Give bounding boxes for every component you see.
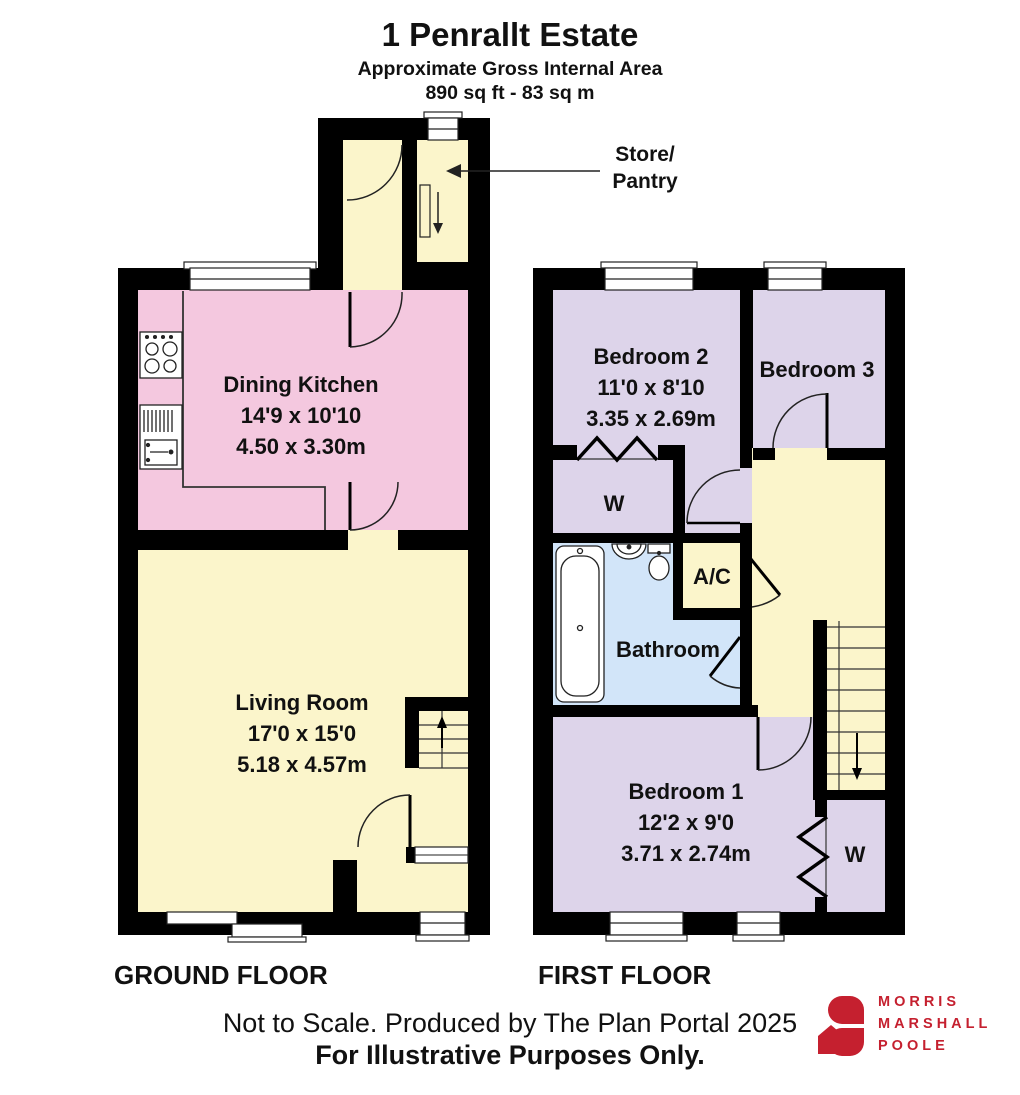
floorplan-page: 1 Penrallt Estate Approximate Gross Inte… xyxy=(0,0,1020,1095)
logo-text-marshall: MARSHALL xyxy=(878,1016,991,1032)
label-store-pantry: Store/ Pantry xyxy=(612,141,677,195)
bedroom1-doorway xyxy=(758,705,813,717)
kitchen-window xyxy=(184,262,316,290)
label-ground-floor: GROUND FLOOR xyxy=(114,960,328,991)
page-title: 1 Penrallt Estate xyxy=(0,16,1020,54)
bathroom-floor-ext xyxy=(673,620,740,705)
label-bedroom-1: Bedroom 1 12'2 x 9'0 3.71 x 2.74m xyxy=(621,776,751,869)
hall-wall-stub xyxy=(333,860,357,912)
ground-floor-plan xyxy=(118,112,600,942)
footer-illustrative: For Illustrative Purposes Only. xyxy=(0,1040,1020,1071)
page-area: 890 sq ft - 83 sq m xyxy=(0,82,1020,105)
logo-text-poole: POOLE xyxy=(878,1038,949,1054)
hall-side-window xyxy=(406,847,468,863)
toilet-icon xyxy=(648,544,670,580)
bedroom2-doorway xyxy=(740,468,752,523)
label-ac: A/C xyxy=(693,565,731,589)
label-first-floor: FIRST FLOOR xyxy=(538,960,711,991)
label-bathroom: Bathroom xyxy=(616,638,720,662)
sink-icon xyxy=(140,405,182,469)
footer-disclaimer: Not to Scale. Produced by The Plan Porta… xyxy=(0,1008,1020,1039)
label-bedroom-2: Bedroom 2 11'0 x 8'10 3.35 x 2.69m xyxy=(586,341,716,434)
store-window xyxy=(424,112,462,140)
bedroom3-doorway xyxy=(775,448,827,460)
label-bedroom-3: Bedroom 3 xyxy=(760,358,875,382)
bath-icon xyxy=(556,546,604,702)
page-subtitle: Approximate Gross Internal Area xyxy=(0,58,1020,81)
hob-icon xyxy=(140,332,182,378)
label-living-room: Living Room 17'0 x 15'0 5.18 x 4.57m xyxy=(235,687,368,780)
label-dining-kitchen: Dining Kitchen 14'9 x 10'10 4.50 x 3.30m xyxy=(223,369,378,462)
label-wardrobe-bedroom2: W xyxy=(604,492,625,516)
kitchen-living-doorway xyxy=(348,530,398,550)
store-hall-floor xyxy=(343,140,402,290)
label-wardrobe-bedroom1: W xyxy=(845,843,866,867)
floorplan-canvas xyxy=(0,0,1020,1095)
logo-text-morris: MORRIS xyxy=(878,994,960,1010)
